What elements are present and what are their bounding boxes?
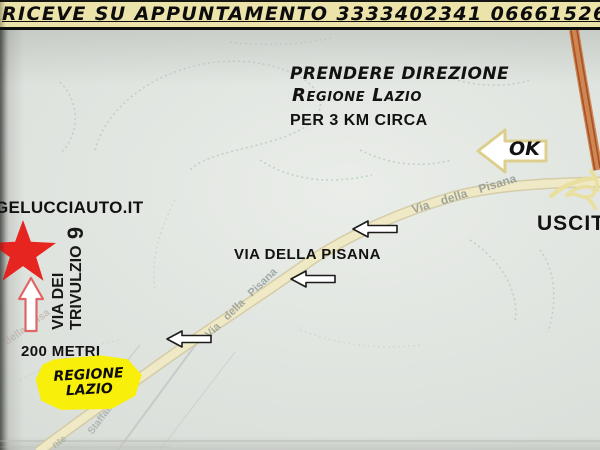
street-line1: VIA DEI — [50, 273, 67, 330]
street-name-vertical: VIA DEI TRIVULZIO — [50, 235, 87, 330]
street-line2: TRIVULZIO — [69, 245, 86, 329]
direction-line1: PRENDERE DIREZIONE — [290, 64, 509, 84]
street-number: 9 — [63, 227, 89, 239]
interchange — [550, 170, 597, 210]
left-arrow-icon-3 — [164, 329, 214, 349]
up-arrow-icon — [16, 276, 46, 334]
appointment-banner-text: RICEVE SU APPUNTAMENTO 3333402341 066615… — [0, 2, 600, 27]
exit-label: USCITA — [537, 212, 600, 236]
main-road-label: VIA DELLA PISANA — [234, 246, 381, 263]
ok-label: OK — [509, 138, 540, 160]
direction-line3: PER 3 KM CIRCA — [290, 112, 428, 130]
directions-map-photo: Via della Pisana Via della Pisana della … — [0, 0, 600, 450]
appointment-banner: RICEVE SU APPUNTAMENTO 3333402341 066615… — [0, 0, 600, 30]
left-arrow-icon-2 — [289, 269, 337, 289]
highway — [571, 30, 600, 170]
pisana-road — [38, 182, 600, 450]
left-arrow-icon-1 — [351, 219, 399, 239]
direction-line2: Regione Lazio — [292, 85, 422, 106]
sign-line2: LAZIO — [66, 382, 114, 400]
website-label: GELUCCIAUTO.IT — [0, 198, 143, 218]
